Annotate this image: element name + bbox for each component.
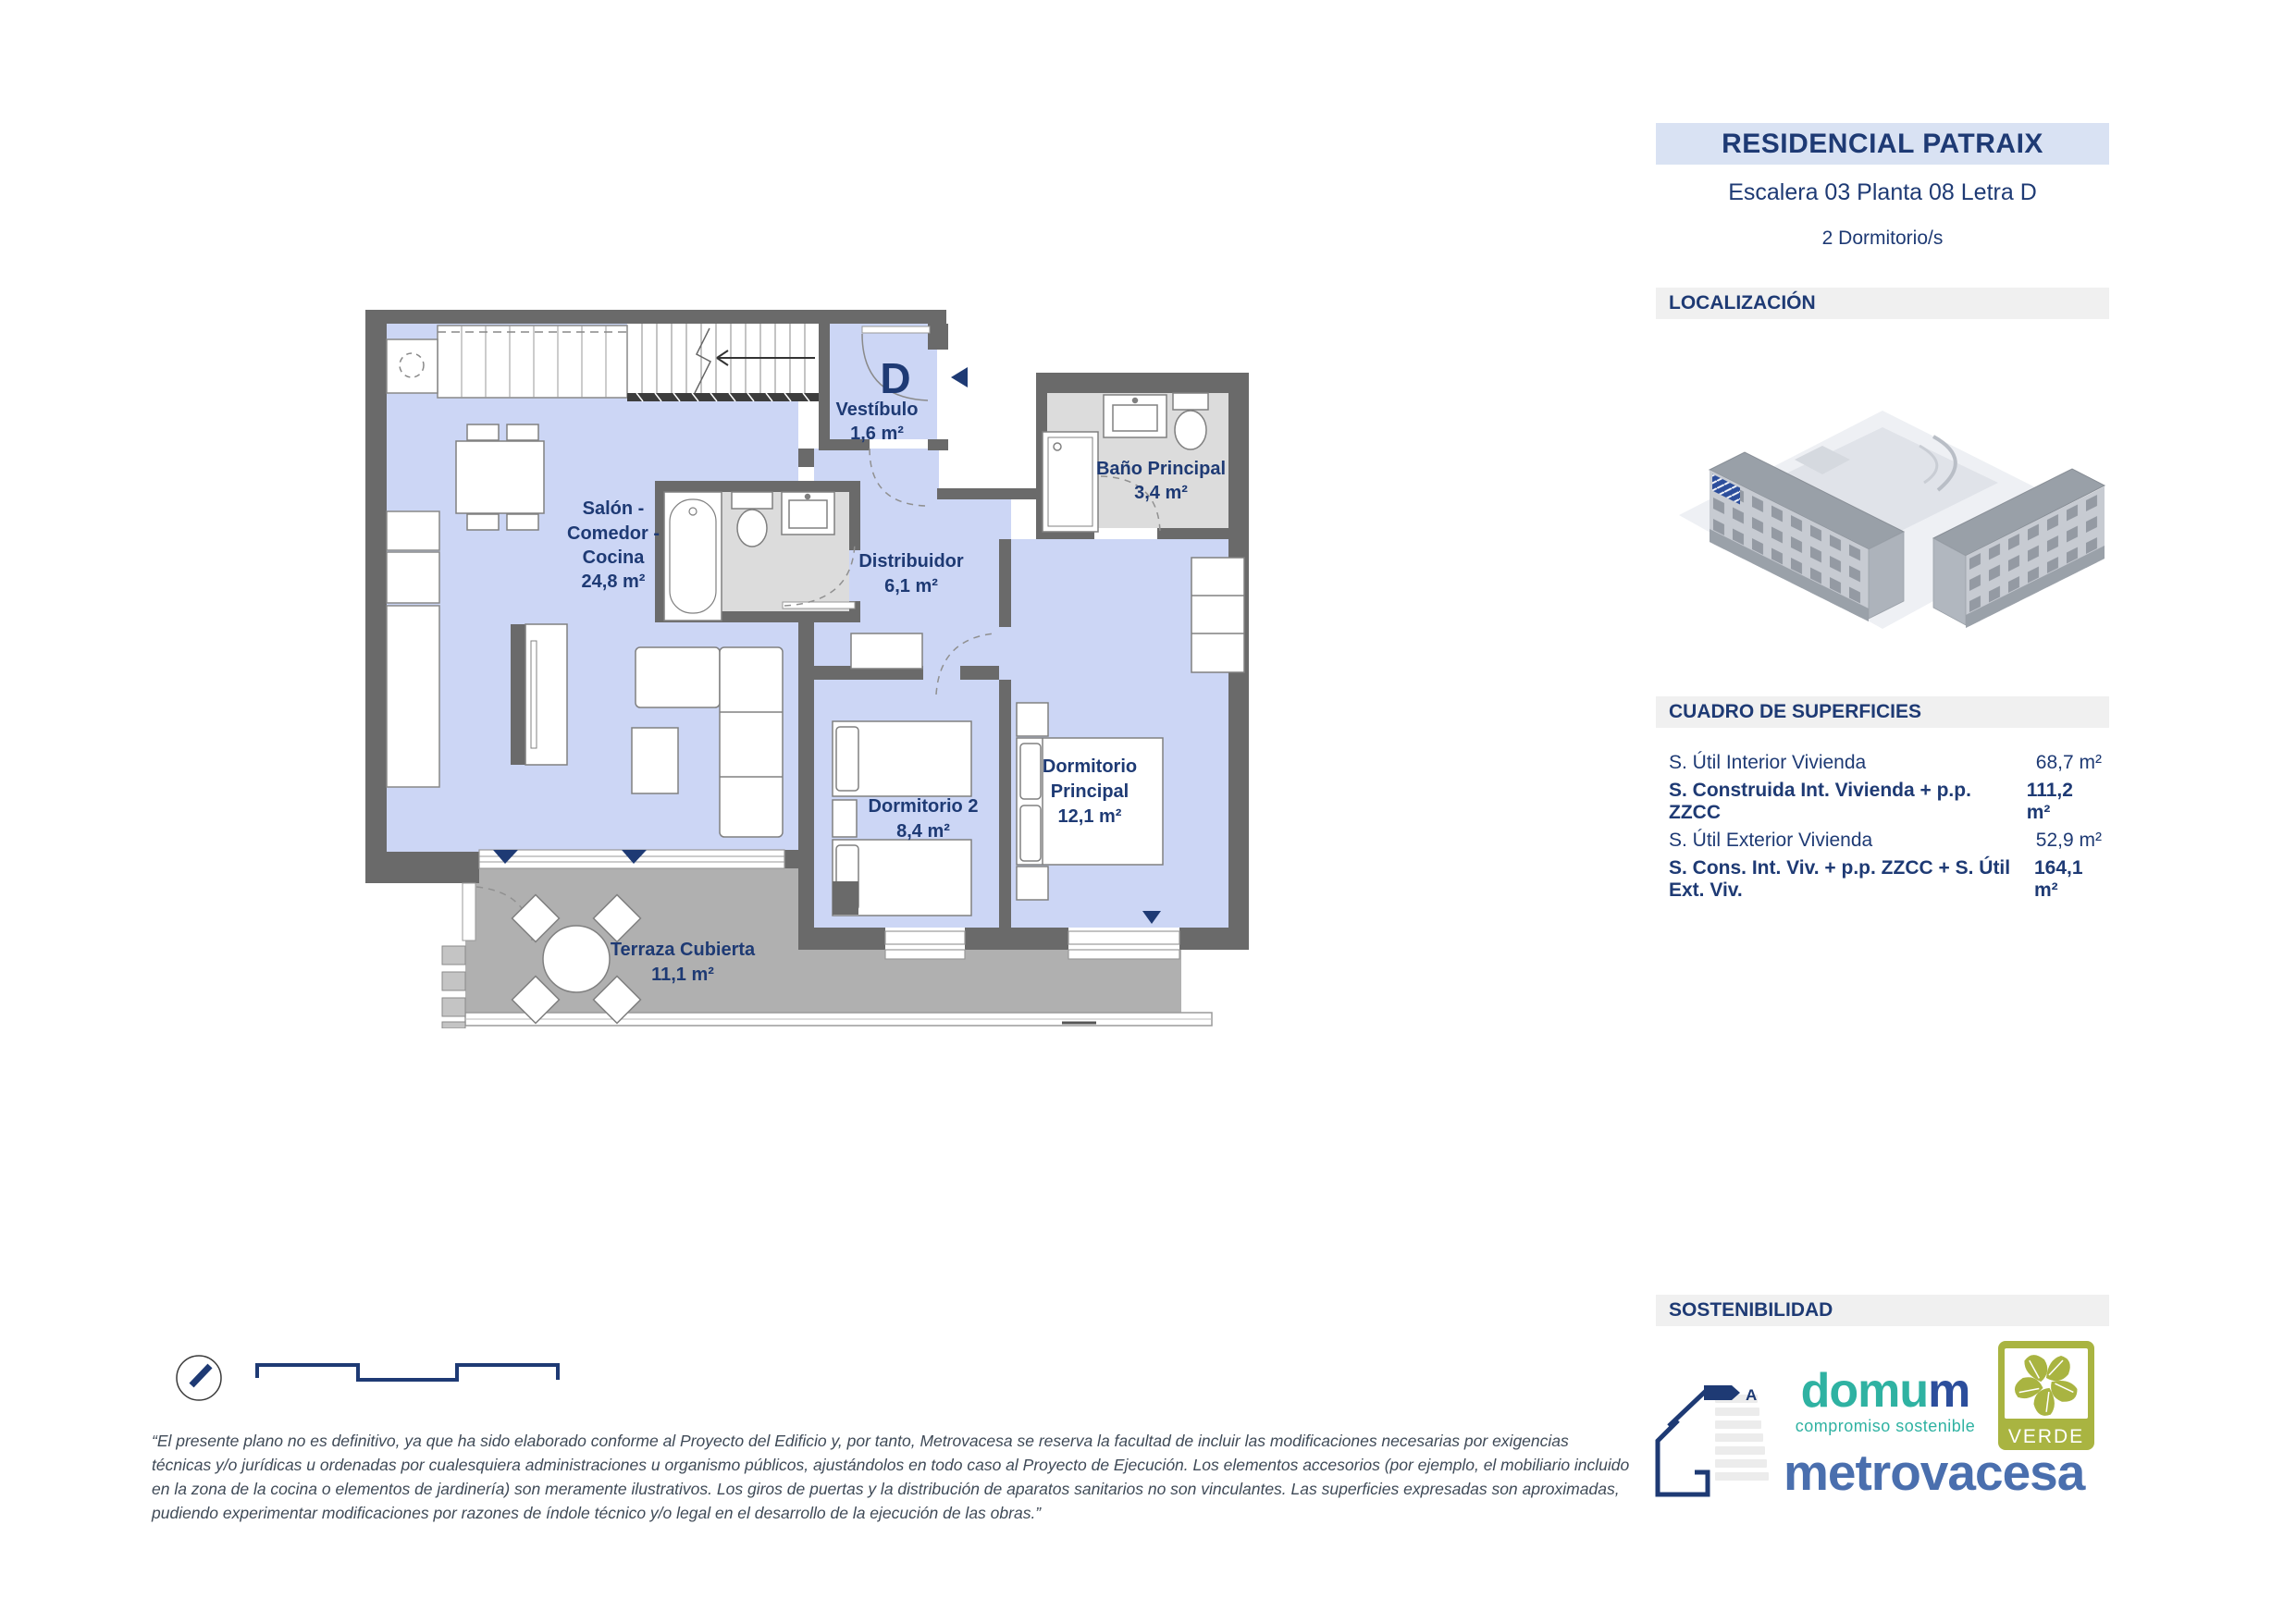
domum-logo: domum compromiso sostenible [1758, 1367, 2013, 1436]
label-vestibulo-area: 1,6 m² [850, 424, 904, 444]
surface-row: S. Útil Interior Vivienda 68,7 m² [1669, 744, 2102, 782]
surface-row: S. Construida Int. Vivienda + p.p. ZZCC … [1669, 782, 2102, 821]
surface-row: S. Cons. Int. Viv. + p.p. ZZCC + S. Útil… [1669, 860, 2102, 899]
location-3d-render [1656, 335, 2109, 684]
floor-plan: D Vestíbulo 1,6 m² Baño Principal 3,4 m²… [354, 301, 1261, 1028]
verde-certificate-logo: VERDE [1998, 1341, 2100, 1456]
label-bano-principal-area: 3,4 m² [1134, 483, 1188, 503]
energy-rating-icon: A [1650, 1380, 1771, 1509]
unit-reference: Escalera 03 Planta 08 Letra D [1656, 179, 2109, 206]
page-title: RESIDENCIAL PATRAIX [1656, 123, 2109, 165]
entrance-door-leaf [862, 326, 930, 333]
domum-tagline: compromiso sostenible [1758, 1417, 2013, 1436]
dormp-window [1068, 931, 1179, 959]
label-dorm2: Dormitorio 2 [869, 796, 979, 817]
surface-value: 68,7 m² [2036, 752, 2102, 774]
nightstand-p1 [1017, 703, 1048, 736]
label-terraza-area: 11,1 m² [651, 965, 714, 985]
surface-value: 164,1 m² [2034, 857, 2102, 902]
bath2-door-leaf [783, 602, 855, 609]
terrace-door-leaf [463, 883, 475, 941]
compass-icon [172, 1350, 228, 1406]
nightstand-d2 [833, 800, 857, 837]
section-superficies: CUADRO DE SUPERFICIES [1656, 696, 2109, 728]
bathtub [664, 492, 722, 621]
label-dormp-2: Principal [1051, 781, 1129, 802]
bedroom-count: 2 Dormitorio/s [1656, 227, 2109, 250]
energy-rating-letter: A [1746, 1386, 1757, 1404]
label-salon-3: Cocina [583, 547, 646, 568]
surface-label: S. Cons. Int. Viv. + p.p. ZZCC + S. Útil… [1669, 857, 2034, 902]
label-distribuidor-area: 6,1 m² [884, 576, 938, 596]
label-terraza: Terraza Cubierta [611, 940, 756, 960]
label-salon-2: Comedor - [567, 523, 660, 544]
label-salon-area: 24,8 m² [582, 572, 646, 592]
tv-partition [511, 624, 525, 765]
label-dormp-1: Dormitorio [1043, 756, 1137, 777]
section-localizacion: LOCALIZACIÓN [1656, 288, 2109, 319]
label-bano-principal: Baño Principal [1096, 459, 1226, 479]
label-dormp-area: 12,1 m² [1058, 806, 1122, 827]
unit-letter: D [880, 354, 910, 402]
domum-wordmark: domu [1801, 1364, 1929, 1418]
surface-label: S. Útil Interior Vivienda [1669, 752, 1866, 774]
toilet-principal [1173, 393, 1208, 449]
surfaces-table: S. Útil Interior Vivienda 68,7 m² S. Con… [1669, 744, 2102, 899]
surface-value: 111,2 m² [2027, 780, 2102, 824]
label-distribuidor: Distribuidor [858, 551, 964, 572]
brochure-page: D Vestíbulo 1,6 m² Baño Principal 3,4 m²… [0, 0, 2296, 1623]
landing-floor [939, 324, 1036, 490]
nightstand-p2 [1017, 867, 1048, 900]
dorm2-window [885, 931, 965, 959]
surface-label: S. Útil Exterior Vivienda [1669, 830, 1872, 852]
surface-row: S. Útil Exterior Vivienda 52,9 m² [1669, 821, 2102, 860]
verde-label: VERDE [2008, 1426, 2084, 1447]
legal-disclaimer: “El presente plano no es definitivo, ya … [152, 1429, 1632, 1525]
coffee-table [632, 728, 678, 793]
surface-label: S. Construida Int. Vivienda + p.p. ZZCC [1669, 780, 2027, 824]
bed-single-1 [833, 721, 971, 796]
tv-unit [525, 624, 567, 765]
sink-2 [782, 492, 834, 535]
terrace-planters [442, 946, 465, 1028]
surface-value: 52,9 m² [2036, 830, 2102, 852]
wardrobe [1191, 558, 1244, 672]
label-vestibulo: Vestíbulo [836, 400, 919, 420]
label-dorm2-area: 8,4 m² [896, 821, 950, 842]
section-sostenibilidad: SOSTENIBILIDAD [1656, 1295, 2109, 1326]
label-salon-1: Salón - [583, 498, 645, 519]
shower [1043, 432, 1098, 532]
closet-hall [851, 633, 922, 669]
wall-pier [833, 881, 858, 915]
scale-bar [252, 1358, 566, 1389]
sink-principal [1104, 395, 1167, 437]
